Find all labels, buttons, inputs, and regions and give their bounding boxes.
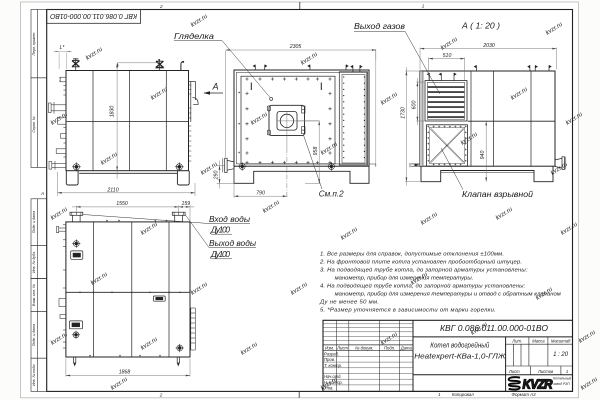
svg-text:Утв.: Утв. bbox=[324, 386, 334, 391]
svg-text:Масса: Масса bbox=[532, 339, 545, 344]
svg-text:Котельный: Котельный bbox=[553, 377, 571, 381]
svg-text:Вход воды: Вход воды bbox=[209, 214, 250, 224]
svg-text:Гляделка: Гляделка bbox=[174, 31, 214, 41]
svg-text:КВГ 0.086.011.00.000-01ВО: КВГ 0.086.011.00.000-01ВО bbox=[50, 12, 137, 21]
svg-text:1. Все размеры для справок, до: 1. Все размеры для справок, допустимые о… bbox=[320, 251, 504, 257]
svg-text:Клапан взрывной: Клапан взрывной bbox=[462, 189, 533, 199]
svg-text:Инв. № дубл.: Инв. № дубл. bbox=[32, 251, 36, 273]
svg-text:4. На подводящей трубе котла,: 4. На подводящей трубе котла, до запорно… bbox=[320, 282, 526, 289]
svg-text:Т. контр.: Т. контр. bbox=[324, 363, 342, 368]
svg-text:KVZR: KVZR bbox=[523, 377, 553, 392]
svg-text:1730: 1730 bbox=[400, 107, 406, 119]
svg-text:Выход воды: Выход воды bbox=[209, 238, 256, 248]
svg-text:Heatexpert-КВа-1,0-ГЛЖ: Heatexpert-КВа-1,0-ГЛЖ bbox=[414, 351, 505, 360]
svg-text:Ду100: Ду100 bbox=[210, 225, 230, 235]
svg-text:№ докум.: № докум. bbox=[355, 346, 373, 351]
svg-text:958: 958 bbox=[313, 147, 319, 156]
svg-text:Дата: Дата bbox=[400, 346, 413, 351]
svg-text:1550: 1550 bbox=[116, 201, 128, 207]
svg-text:Выход газов: Выход газов bbox=[354, 21, 406, 31]
svg-text:940: 940 bbox=[480, 151, 486, 160]
svg-text:Ду100: Ду100 bbox=[210, 249, 230, 259]
svg-text:Перв. примен.: Перв. примен. bbox=[32, 32, 36, 56]
svg-text:Изм.: Изм. bbox=[325, 346, 334, 351]
svg-text:Подп.: Подп. bbox=[384, 346, 395, 351]
svg-text:Котел водогрейный: Котел водогрейный bbox=[430, 341, 489, 350]
svg-text:2110: 2110 bbox=[106, 187, 118, 193]
svg-text:Инв. № подл.: Инв. № подл. bbox=[32, 364, 36, 386]
svg-text:Пров.: Пров. bbox=[324, 357, 335, 362]
svg-text:Н. контр.: Н. контр. bbox=[324, 380, 343, 385]
svg-text:Формат А3: Формат А3 bbox=[511, 392, 536, 397]
svg-text:2030: 2030 bbox=[482, 43, 495, 49]
svg-text:1868: 1868 bbox=[119, 370, 131, 376]
svg-text:А: А bbox=[212, 82, 219, 92]
svg-text:Листов: Листов bbox=[537, 369, 554, 374]
svg-text:Лист: Лист bbox=[336, 346, 348, 351]
svg-text:Ду не менее 50 мм.: Ду не менее 50 мм. bbox=[319, 299, 379, 305]
svg-text:КВГ 0.086.011.00.000-01ВО: КВГ 0.086.011.00.000-01ВО bbox=[440, 323, 548, 333]
svg-text:Справ. №: Справ. № bbox=[32, 116, 36, 132]
svg-text:манометр, прибор для измерения: манометр, прибор для измерения температу… bbox=[335, 291, 561, 297]
svg-text:1 : 20: 1 : 20 bbox=[553, 352, 569, 358]
svg-text:Подп. и дата: Подп. и дата bbox=[32, 211, 36, 234]
svg-text:Копировал: Копировал bbox=[452, 392, 474, 397]
svg-text:159: 159 bbox=[181, 201, 190, 207]
svg-text:Разраб.: Разраб. bbox=[324, 351, 339, 356]
svg-text:600: 600 bbox=[411, 101, 417, 110]
svg-text:5. *Размер уточняется в зависи: 5. *Размер уточняется в зависимости от м… bbox=[320, 307, 496, 313]
svg-text:А ( 1: 20 ): А ( 1: 20 ) bbox=[461, 21, 500, 31]
svg-text:1: 1 bbox=[566, 369, 568, 374]
svg-text:2: 2 bbox=[159, 392, 163, 397]
svg-text:Лит.: Лит. bbox=[511, 339, 522, 344]
svg-text:См.п.2: См.п.2 bbox=[319, 189, 344, 199]
svg-text:1: 1 bbox=[422, 4, 425, 9]
svg-text:Подп. и дата: Подп. и дата bbox=[32, 324, 36, 347]
svg-text:290: 290 bbox=[213, 171, 219, 181]
svg-text:2: 2 bbox=[159, 4, 163, 9]
svg-text:2305: 2305 bbox=[289, 44, 302, 50]
svg-text:завод РЭП: завод РЭП bbox=[552, 382, 570, 386]
svg-text:1830: 1830 bbox=[109, 106, 115, 118]
svg-text:Масштаб: Масштаб bbox=[551, 339, 571, 344]
svg-text:А: А bbox=[40, 191, 44, 196]
svg-text:510: 510 bbox=[443, 53, 452, 59]
svg-text:3. На подводящей трубе котла,: 3. На подводящей трубе котла, до запорно… bbox=[320, 266, 528, 273]
svg-text:манометр, прибор для измерения: манометр, прибор для измерения температу… bbox=[335, 275, 474, 281]
svg-text:Нач.отд.: Нач.отд. bbox=[324, 374, 342, 379]
svg-text:Лист: Лист bbox=[508, 369, 520, 374]
svg-text:790: 790 bbox=[256, 191, 265, 197]
svg-text:Взам. инв. №: Взам. инв. № bbox=[32, 284, 36, 306]
svg-text:2. На фронтовой плите котла ус: 2. На фронтовой плите котла установлен п… bbox=[319, 258, 522, 265]
